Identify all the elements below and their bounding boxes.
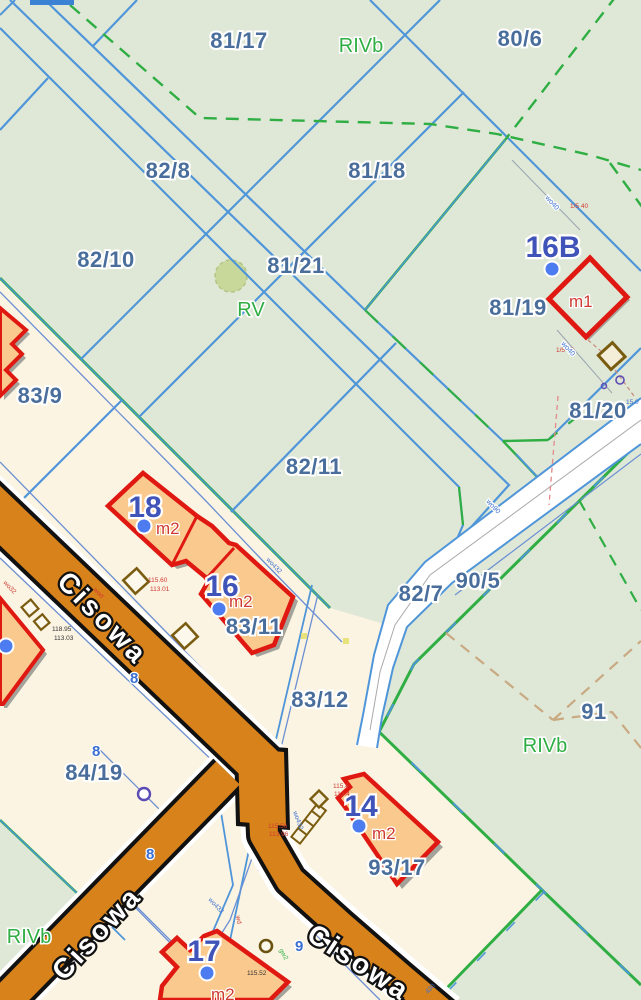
svg-text:81/17: 81/17 (210, 28, 268, 53)
svg-text:81/20: 81/20 (569, 398, 627, 423)
svg-text:115.4: 115.4 (333, 783, 349, 790)
svg-text:82/8: 82/8 (146, 158, 191, 183)
svg-text:84/19: 84/19 (65, 760, 123, 785)
svg-text:93/17: 93/17 (368, 855, 426, 880)
svg-text:8: 8 (130, 670, 138, 687)
svg-text:113.4: 113.4 (334, 791, 350, 798)
svg-text:m2: m2 (156, 519, 180, 538)
svg-text:8: 8 (146, 846, 154, 863)
svg-text:83/12: 83/12 (291, 687, 349, 712)
svg-text:m2: m2 (211, 985, 235, 1000)
svg-text:9: 9 (295, 938, 303, 955)
svg-text:82/7: 82/7 (399, 581, 444, 606)
svg-text:118.95: 118.95 (52, 626, 72, 633)
svg-text:RIVb: RIVb (7, 926, 51, 948)
svg-text:113.03: 113.03 (54, 635, 74, 642)
svg-text:115.56: 115.56 (268, 823, 288, 830)
svg-text:91: 91 (581, 699, 606, 724)
svg-text:81/19: 81/19 (489, 295, 547, 320)
svg-text:83/9: 83/9 (18, 383, 63, 408)
svg-text:16B: 16B (525, 231, 580, 264)
svg-text:RIVb: RIVb (339, 35, 383, 57)
svg-text:82/10: 82/10 (77, 247, 135, 272)
svg-text:83/11: 83/11 (226, 614, 282, 639)
svg-text:113.01: 113.01 (150, 586, 170, 593)
svg-text:8: 8 (92, 743, 100, 760)
svg-text:1/5 40: 1/5 40 (570, 203, 588, 210)
svg-text:m2: m2 (229, 592, 253, 611)
svg-text:90/5: 90/5 (456, 568, 501, 593)
svg-text:115.52: 115.52 (247, 970, 267, 977)
svg-text:m2: m2 (372, 824, 396, 843)
svg-text:m1: m1 (569, 292, 593, 311)
svg-text:80/6: 80/6 (498, 26, 543, 51)
svg-text:81/18: 81/18 (348, 158, 406, 183)
svg-text:82/11: 82/11 (286, 454, 342, 479)
svg-text:115.60: 115.60 (148, 577, 168, 584)
svg-text:81/21: 81/21 (267, 253, 325, 278)
svg-text:15.0: 15.0 (626, 399, 639, 406)
svg-text:RV: RV (237, 299, 265, 321)
svg-text:RIVb: RIVb (523, 735, 567, 757)
svg-text:17: 17 (187, 935, 220, 968)
svg-text:113.96: 113.96 (269, 831, 289, 838)
